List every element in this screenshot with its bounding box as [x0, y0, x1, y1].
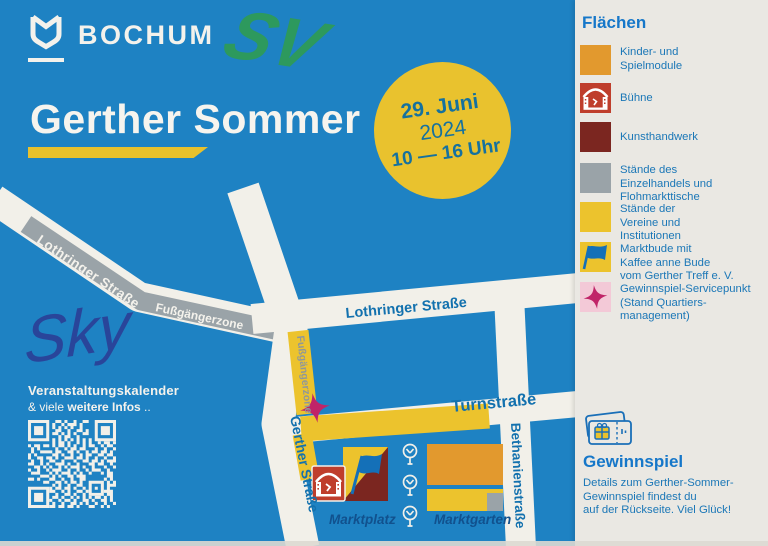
legend-item-kinder: Kinder- und Spielmodule: [580, 45, 682, 75]
swatch-dark-red: [580, 122, 611, 152]
legend-item-gewinnspiel-punkt: Gewinnspiel-Servicepunkt (Stand Quartier…: [580, 282, 751, 324]
strip-turnstrasse-stands: [301, 416, 489, 429]
legend-label: Kinder- und Spielmodule: [620, 46, 682, 73]
place-label-marktplatz: Marktplatz: [329, 512, 396, 527]
legend-label: Bühne: [620, 92, 653, 106]
gewinnspiel-text: Details zum Gerther-Sommer- Gewinnspiel …: [583, 477, 734, 518]
bochum-brand: BOCHUM: [26, 14, 215, 54]
area-kinder-spielmodule: [427, 444, 503, 485]
calendar-info-bold: weitere Infos: [67, 400, 140, 414]
swatch-orange: [580, 45, 611, 75]
legend-label: Marktbude mit Kaffee anne Bude vom Gerth…: [620, 243, 734, 284]
legend-label: Stände der Vereine und Institutionen: [620, 203, 681, 244]
stage-icon: [580, 83, 611, 113]
area-marktbude: [343, 447, 388, 501]
legend-label: Gewinnspiel-Servicepunkt (Stand Quartier…: [620, 283, 751, 324]
flag-icon: [580, 242, 611, 272]
bochum-logo-icon: [26, 14, 66, 54]
date-badge: 29. Juni 2024 10 — 16 Uhr: [374, 62, 511, 199]
calendar-info: Veranstaltungskalender & viele weitere I…: [28, 383, 179, 414]
event-poster: Lothringer Straße Fußgängerzone Lothring…: [0, 0, 768, 546]
place-label-marktgarten: Marktgarten: [434, 512, 511, 527]
legend-item-kunsthandwerk: Kunsthandwerk: [580, 122, 698, 152]
logo-underline: [28, 58, 64, 62]
legend-label: Kunsthandwerk: [620, 131, 698, 145]
brand-name: BOCHUM: [78, 20, 215, 51]
area-flohmarkt-gray: [487, 493, 503, 511]
ticket-icon: [581, 408, 637, 450]
swatch-gray: [580, 163, 611, 193]
title-underline: [28, 147, 208, 158]
legend-item-vereine: Stände der Vereine und Institutionen: [580, 202, 681, 244]
qr-code: [28, 420, 116, 508]
gewinnspiel-star-icon: [580, 282, 611, 312]
calendar-info-suffix: ..: [141, 400, 151, 414]
page-title: Gerther Sommer: [30, 96, 361, 143]
gewinnspiel-heading: Gewinnspiel: [583, 452, 683, 472]
tree-icon: [404, 507, 417, 527]
calendar-info-prefix: & viele: [28, 400, 67, 414]
legend-item-marktbude: Marktbude mit Kaffee anne Bude vom Gerth…: [580, 242, 734, 284]
tree-icon: [404, 445, 417, 465]
tree-icons: [404, 445, 417, 527]
legend-sidebar: Flächen Kinder- und Spielmodule Bühne Ku…: [575, 0, 768, 546]
scan-edge: [0, 541, 768, 546]
tree-icon: [404, 476, 417, 496]
legend-label: Stände des Einzelhandels und Flohmarktti…: [620, 164, 712, 205]
legend-heading: Flächen: [582, 13, 646, 33]
legend-item-einzelhandel: Stände des Einzelhandels und Flohmarktti…: [580, 163, 712, 205]
calendar-info-title: Veranstaltungskalender: [28, 383, 179, 398]
calendar-info-subtitle: & viele weitere Infos ..: [28, 400, 179, 414]
legend-item-buehne: Bühne: [580, 83, 653, 113]
swatch-yellow: [580, 202, 611, 232]
